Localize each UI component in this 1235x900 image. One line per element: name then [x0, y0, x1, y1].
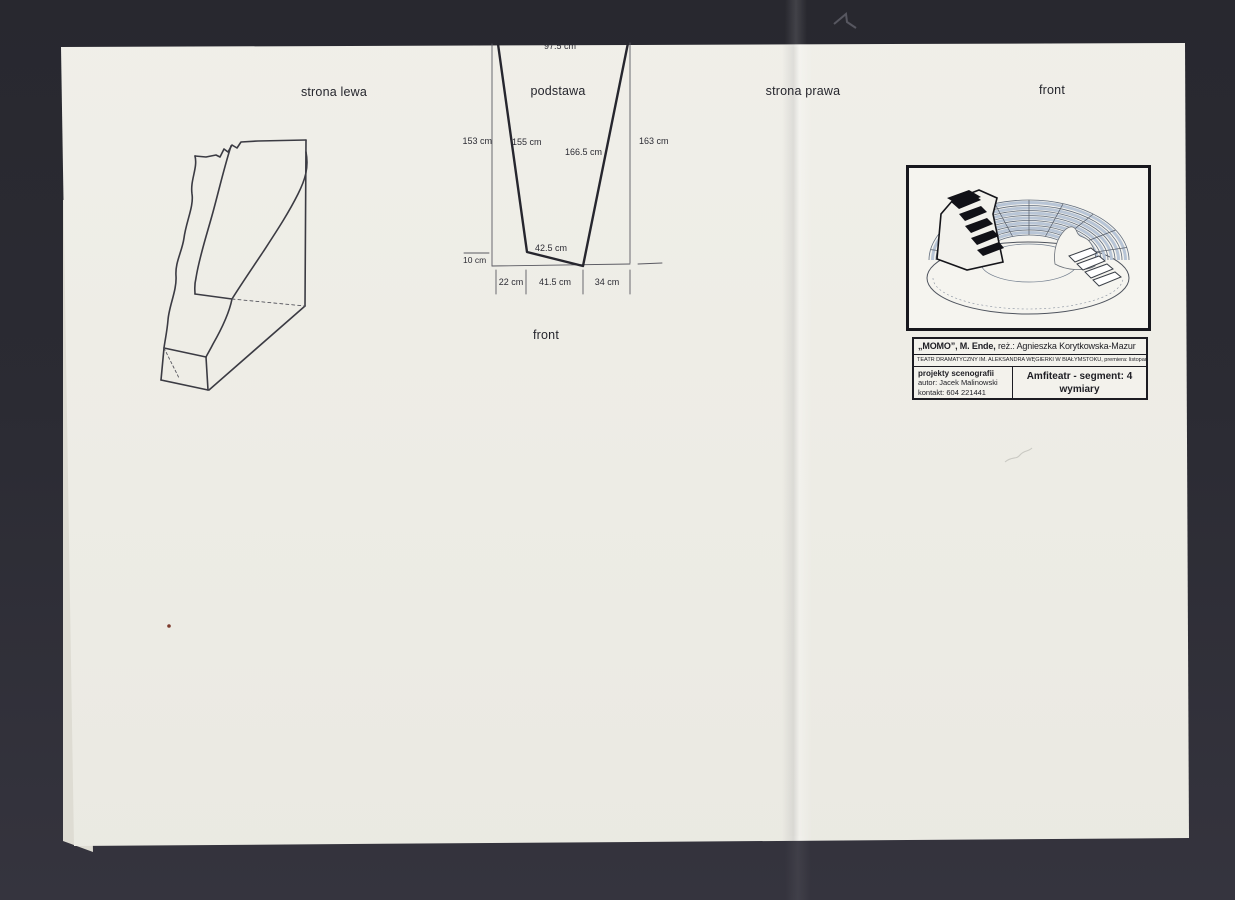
author-line: autor: Jacek Malinowski	[918, 378, 1012, 388]
faint-scratch	[1005, 448, 1032, 462]
details-row: projekty scenografii autor: Jacek Malino…	[914, 367, 1146, 399]
theatre-row: TEATR DRAMATYCZNY IM. ALEKSANDRA WĘGIERK…	[914, 355, 1146, 367]
dim-segment-2: 41.5 cm	[531, 277, 579, 287]
dim-left-offset: 10 cm	[463, 255, 486, 265]
dim-left-outer: 153 cm	[458, 136, 492, 146]
dim-left-edge: 155 cm	[512, 137, 542, 147]
paper-speck	[167, 624, 171, 628]
scanned-sheet-photo: { "colors": { "background": "#2b2b33", "…	[0, 0, 1235, 900]
title-row: „MOMO”, M. Ende, reż.: Agnieszka Korytko…	[914, 339, 1146, 355]
amphitheater-figure	[909, 168, 1148, 328]
drawing-title: Amfiteatr - segment: 4	[1013, 370, 1146, 383]
line-drawings	[0, 0, 1235, 900]
dim-top-width: 97.5 cm	[534, 41, 586, 51]
play-title: „MOMO”, M. Ende,	[918, 341, 996, 351]
label-strona-prawa: strona prawa	[745, 84, 861, 98]
left-wedge-figure	[161, 140, 307, 390]
contact-line: kontakt: 604 221441	[918, 388, 1012, 398]
dim-segment-3: 34 cm	[589, 277, 625, 287]
label-strona-lewa: strona lewa	[282, 85, 386, 99]
author-cell: projekty scenografii autor: Jacek Malino…	[914, 367, 1013, 399]
dim-right-outer: 163 cm	[639, 136, 669, 146]
director-credit: reż.: Agnieszka Korytkowska-Mazur	[996, 341, 1136, 351]
scan-marks	[167, 14, 1032, 628]
highlighted-segment	[937, 190, 1004, 270]
dim-right-edge: 166.5 cm	[565, 147, 602, 157]
dim-segment-1: 22 cm	[496, 277, 526, 287]
label-front-right: front	[1020, 83, 1084, 97]
project-label: projekty scenografii	[918, 369, 1012, 379]
podstawa-figure	[464, 43, 662, 294]
amphitheater-image-box	[906, 165, 1151, 331]
label-front-bottom: front	[514, 328, 578, 342]
backdrop-mark	[834, 14, 856, 28]
title-block: „MOMO”, M. Ende, reż.: Agnieszka Korytko…	[912, 337, 1148, 400]
dim-bottom-edge: 42.5 cm	[535, 243, 567, 253]
drawing-title-cell: Amfiteatr - segment: 4 wymiary	[1013, 367, 1146, 399]
label-podstawa: podstawa	[514, 84, 602, 98]
drawing-subtitle: wymiary	[1013, 383, 1146, 396]
